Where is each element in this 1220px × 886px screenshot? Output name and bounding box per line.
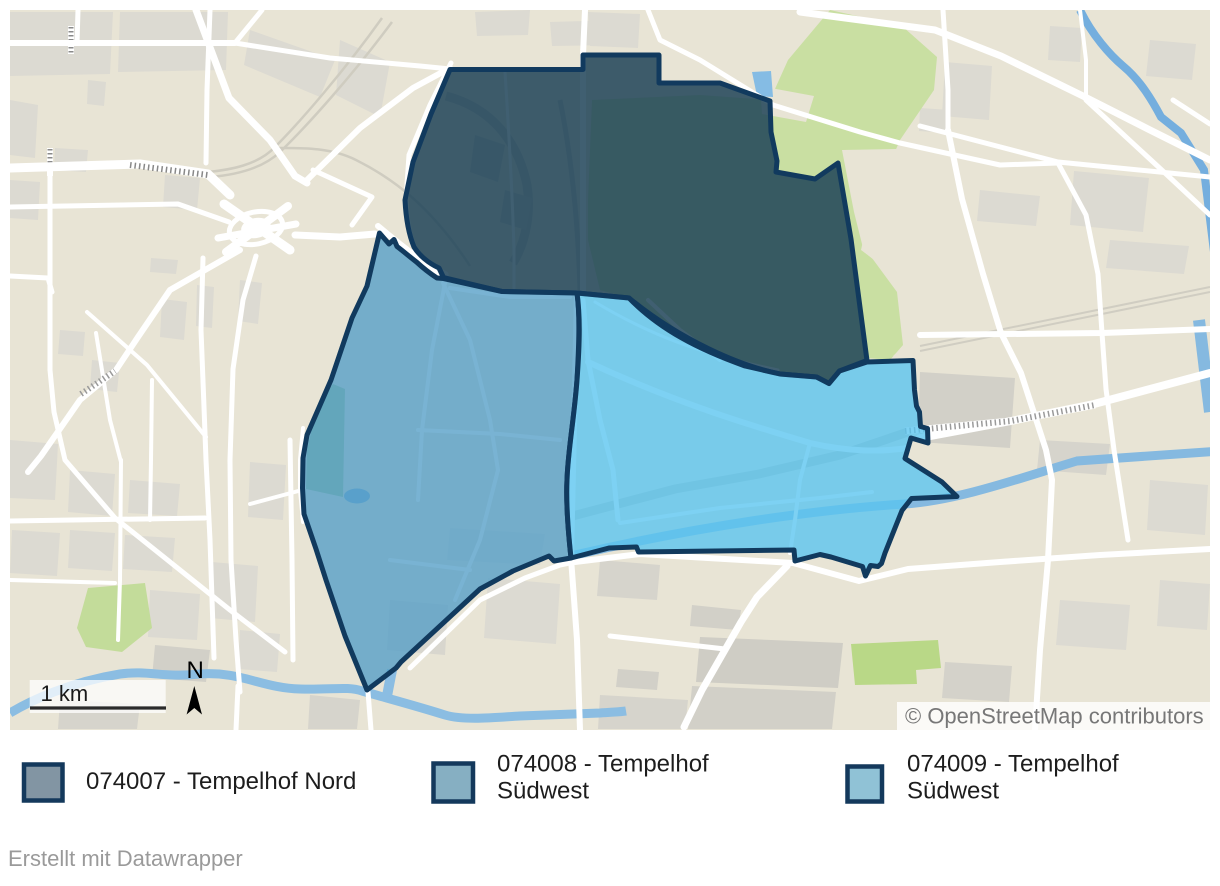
svg-text:Südwest: Südwest [907,778,999,805]
svg-text:074008 - Tempelhof: 074008 - Tempelhof [497,751,709,778]
svg-text:074007 - Tempelhof Nord: 074007 - Tempelhof Nord [86,768,356,795]
svg-text:Südwest: Südwest [497,778,589,805]
svg-text:1 km: 1 km [41,681,89,706]
svg-text:N: N [187,657,204,684]
svg-text:Erstellt mit Datawrapper: Erstellt mit Datawrapper [8,846,243,871]
svg-text:074009 - Tempelhof: 074009 - Tempelhof [907,751,1119,778]
svg-text:© OpenStreetMap contributors: © OpenStreetMap contributors [905,704,1204,729]
